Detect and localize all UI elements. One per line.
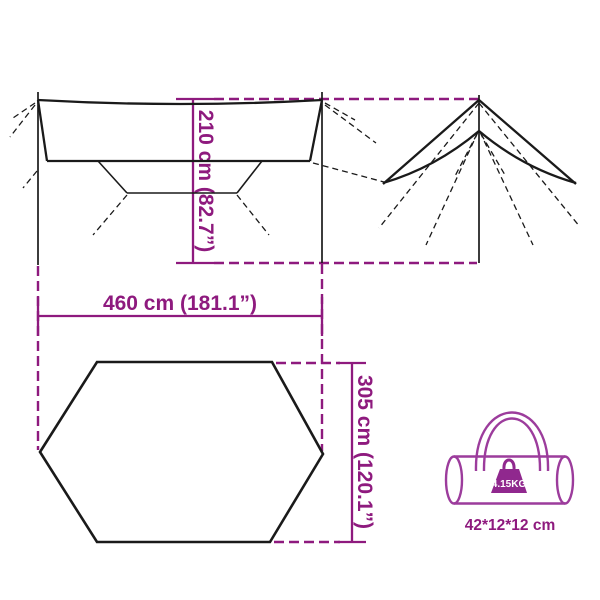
packed-size-label: 42*12*12 cm <box>465 517 556 534</box>
guy-rope <box>325 105 376 143</box>
guy-rope <box>13 103 35 118</box>
guy-rope <box>480 132 533 245</box>
depth-label: 305 cm (120.1”) <box>353 375 376 529</box>
guy-rope <box>481 134 505 175</box>
height-label: 210 cm (82.7”) <box>194 110 217 252</box>
front-inner-left-slant <box>98 161 127 193</box>
depth-dimension: 305 cm (120.1”) <box>338 363 376 542</box>
tarp-dimension-diagram: 210 cm (82.7”) 460 cm (181.1”) 305 cm (1… <box>0 0 600 600</box>
front-canopy-right-edge <box>310 100 322 161</box>
weight-icon: 4.15KG <box>491 460 527 493</box>
front-inner-right-slant <box>237 161 262 193</box>
guy-rope <box>325 103 355 120</box>
bag-right-end <box>557 457 573 504</box>
guy-rope <box>23 171 37 188</box>
guy-rope <box>379 103 479 228</box>
height-dimension: 210 cm (82.7”) <box>176 99 217 263</box>
carry-bag: 4.15KG 42*12*12 cm <box>446 413 573 535</box>
guy-rope <box>313 163 384 182</box>
guy-rope <box>10 105 35 137</box>
width-label: 460 cm (181.1”) <box>103 292 257 315</box>
front-canopy-top-edge <box>38 100 322 104</box>
width-dimension: 460 cm (181.1”) <box>38 292 322 336</box>
side-lower-edge-right <box>479 131 576 183</box>
bag-left-end <box>446 457 462 504</box>
tarp-side-view <box>379 95 580 263</box>
diagram-canvas: 210 cm (82.7”) 460 cm (181.1”) 305 cm (1… <box>0 0 600 600</box>
guy-rope <box>237 195 269 235</box>
side-lower-edge-left <box>383 131 479 183</box>
guy-rope <box>426 132 478 245</box>
guy-rope <box>93 195 127 235</box>
weight-label: 4.15KG <box>492 479 527 490</box>
tarp-top-view <box>40 362 323 542</box>
front-canopy-left-edge <box>38 100 47 161</box>
weight-loop <box>504 460 514 469</box>
top-view-outline <box>40 362 323 542</box>
